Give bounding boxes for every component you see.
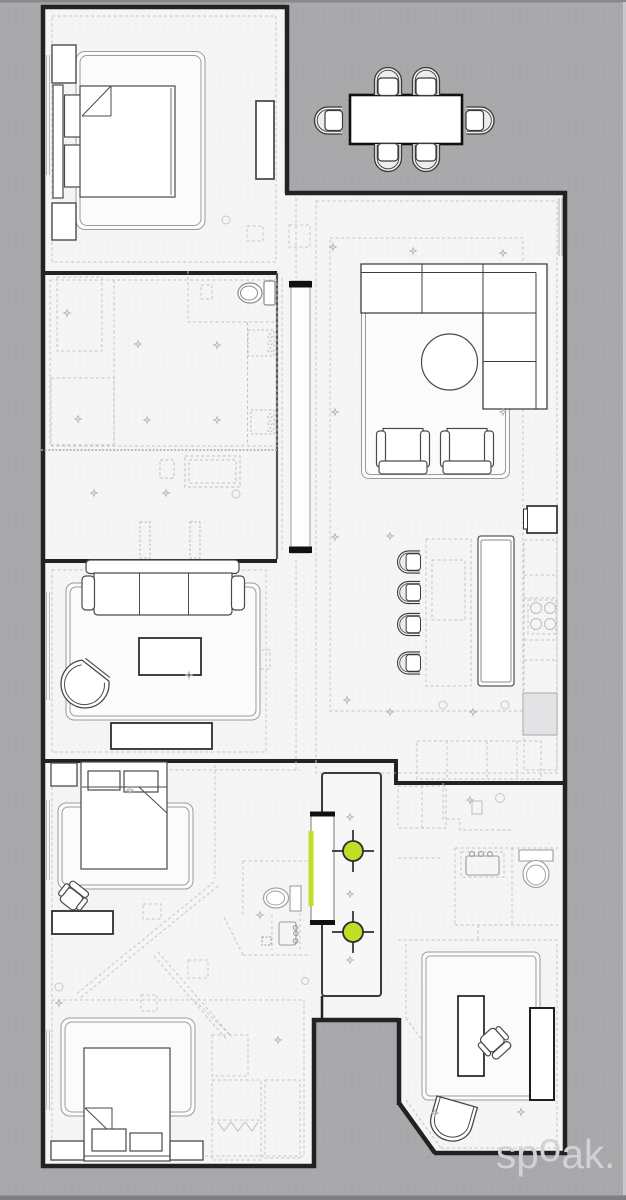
svg-text:spoak.: spoak.: [496, 1124, 615, 1177]
